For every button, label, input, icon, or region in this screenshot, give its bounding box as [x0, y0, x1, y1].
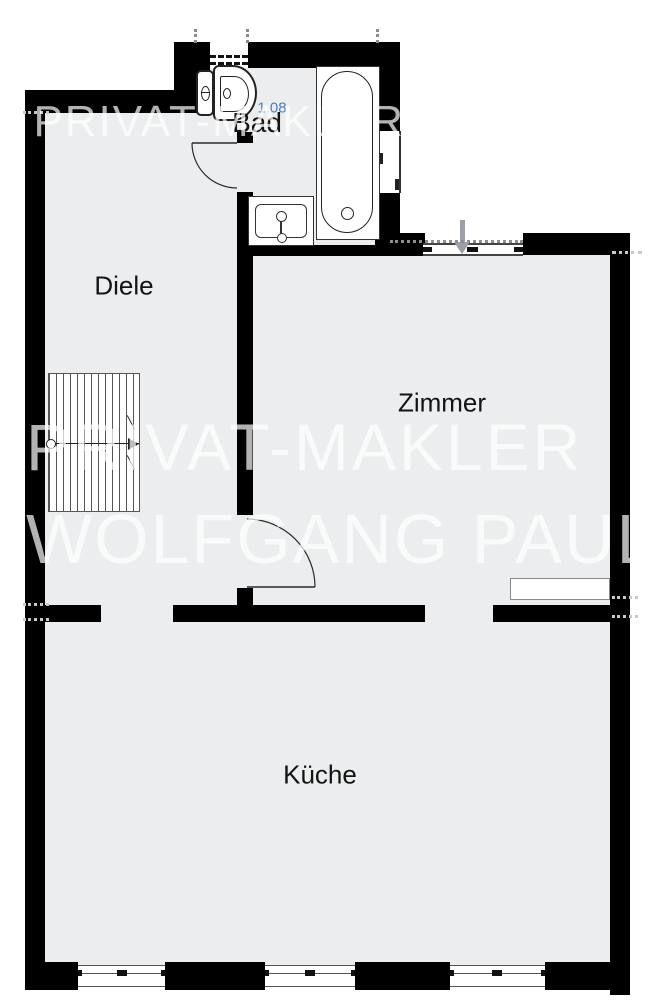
entrance-arrow [454, 220, 471, 254]
room-label-bad: Bad [232, 107, 282, 139]
joint-mark [194, 29, 197, 43]
room-label-zimmer: Zimmer [398, 388, 486, 419]
floorplan-canvas: 1.08 Bad Diele Zimmer Küche PRIVAT-MAKLE… [0, 0, 648, 1000]
bath-door-arc [192, 143, 237, 188]
joint-mark [612, 596, 638, 599]
room-label-diele: Diele [94, 271, 153, 302]
joint-mark [612, 251, 642, 254]
joint-mark [23, 603, 49, 606]
door-arcs [0, 0, 648, 1000]
joint-mark [23, 111, 49, 114]
joint-mark [246, 29, 249, 43]
joint-mark [390, 240, 523, 243]
entrance-arrow-head [454, 242, 470, 254]
joint-mark [612, 615, 638, 618]
entrance-arrow-stem [460, 220, 465, 242]
hall-door-arc [247, 519, 315, 587]
joint-mark [376, 29, 379, 43]
room-label-kueche: Küche [283, 760, 357, 791]
joint-mark [23, 618, 49, 621]
